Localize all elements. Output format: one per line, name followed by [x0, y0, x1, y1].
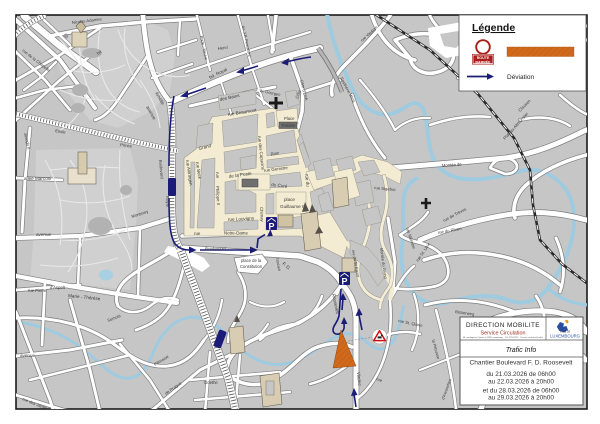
svg-text:98, rue Auguste Charles L-1326: 98, rue Auguste Charles L-1326 Luxembour…	[463, 336, 543, 339]
svg-text:ROUTE: ROUTE	[477, 56, 490, 60]
svg-text:Théâtre: Théâtre	[281, 123, 296, 128]
svg-text:BARRÉE: BARRÉE	[475, 60, 491, 65]
svg-text:Guillaume II: Guillaume II	[280, 204, 305, 209]
svg-text:Philippe II: Philippe II	[215, 186, 221, 206]
svg-text:avenue: avenue	[20, 353, 36, 358]
svg-text:P: P	[268, 221, 274, 231]
svg-text:d'Aspelt: d'Aspelt	[50, 285, 66, 290]
svg-text:Chimay: Chimay	[259, 207, 265, 223]
svg-text:P: P	[341, 276, 347, 286]
svg-text:place de la: place de la	[241, 258, 262, 263]
svg-text:Royal: Royal	[165, 196, 170, 207]
svg-text:avenue: avenue	[36, 232, 52, 237]
svg-text:LUXEMBOURG: LUXEMBOURG	[550, 334, 580, 339]
svg-text:Légende: Légende	[472, 22, 515, 34]
svg-text:au 29.03.2026 à 20h00: au 29.03.2026 à 20h00	[488, 395, 554, 402]
svg-text:Goethe: Goethe	[204, 380, 218, 385]
svg-text:et du 28.03.2026 de 06h00: et du 28.03.2026 de 06h00	[483, 388, 560, 395]
svg-text:Trafic Info: Trafic Info	[506, 347, 537, 354]
svg-text:place: place	[284, 197, 295, 202]
svg-text:Notre-Dame: Notre-Dame	[224, 231, 248, 236]
svg-text:rue Pierre: rue Pierre	[28, 288, 47, 293]
svg-text:allée Marconi: allée Marconi	[24, 176, 51, 181]
svg-text:Place: Place	[284, 116, 295, 121]
svg-text:au 22.03.2026 à 20h00: au 22.03.2026 à 20h00	[488, 379, 554, 386]
svg-text:Boulevard: Boulevard	[205, 247, 226, 252]
svg-text:rue: rue	[194, 231, 201, 236]
svg-text:Déviation: Déviation	[507, 74, 534, 81]
svg-text:Service Circulation: Service Circulation	[481, 331, 526, 337]
svg-text:Chantier Boulevard F. D. Roose: Chantier Boulevard F. D. Roosevelt	[470, 360, 573, 367]
svg-text:du 21.03.2026 de 06h00: du 21.03.2026 de 06h00	[486, 371, 556, 378]
svg-text:DIRECTION MOBILITE: DIRECTION MOBILITE	[466, 322, 540, 329]
svg-text:rue: rue	[215, 172, 220, 179]
svg-text:Constitution: Constitution	[240, 264, 263, 269]
